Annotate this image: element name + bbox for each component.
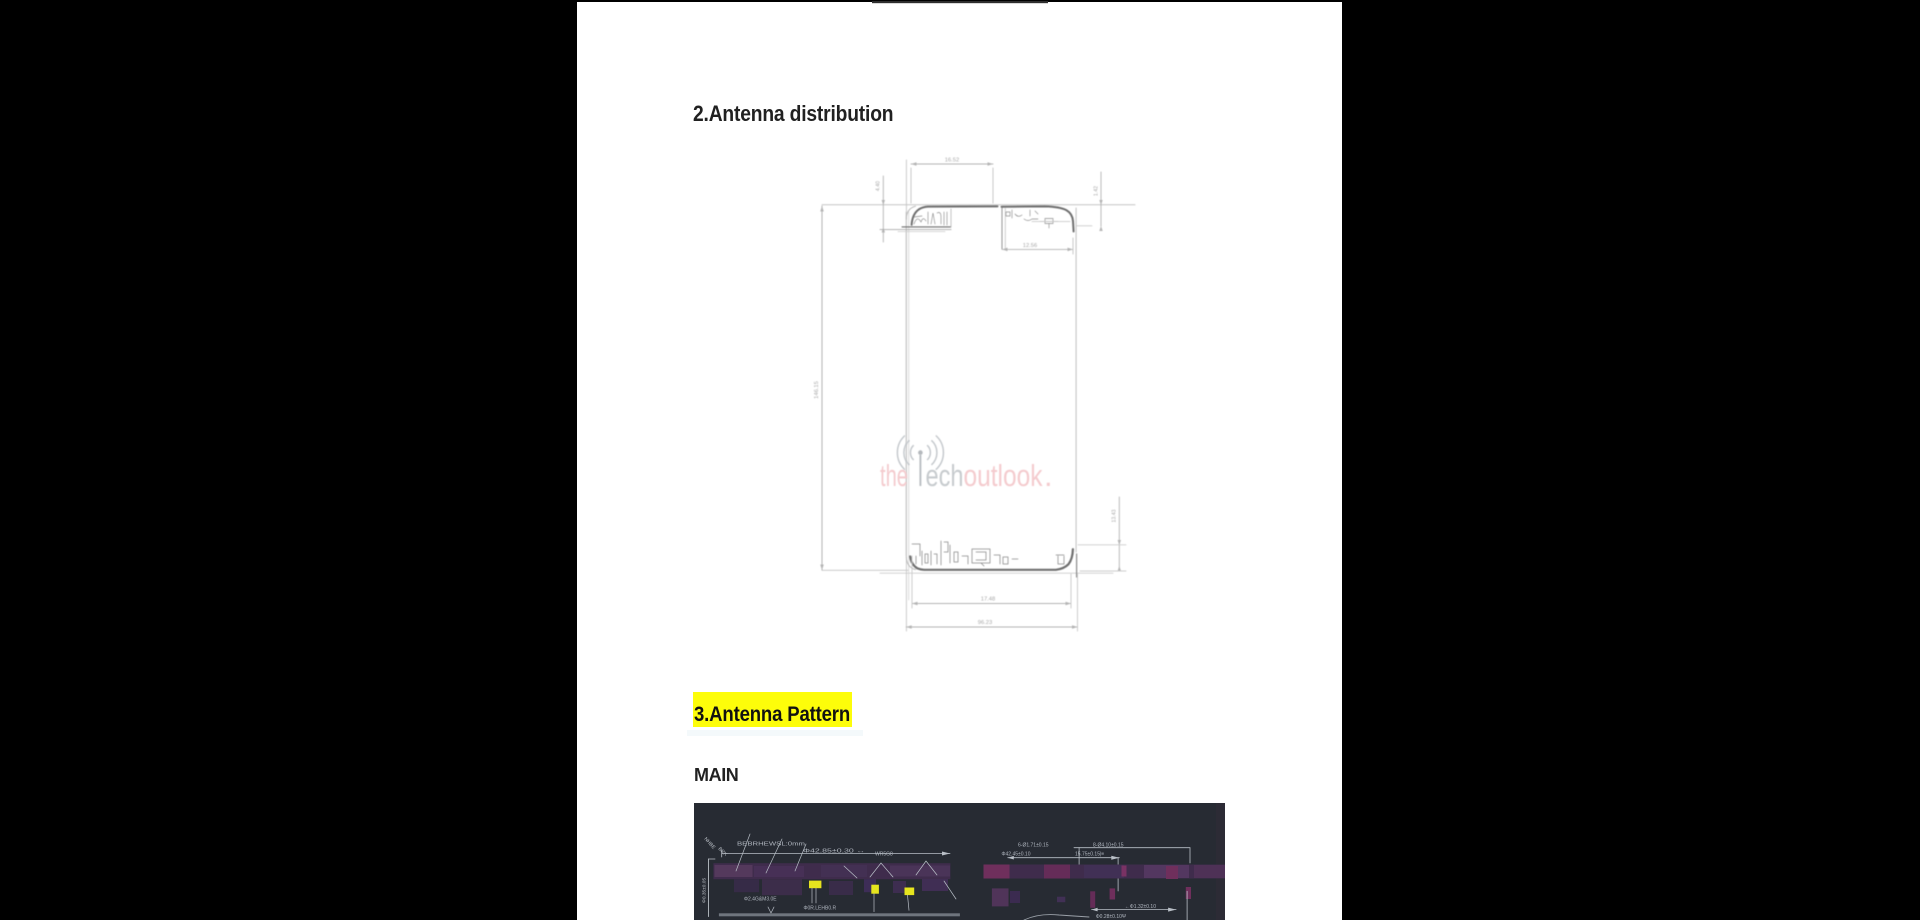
svg-text:1.42: 1.42 bbox=[1094, 186, 1100, 196]
svg-text:outlook: outlook bbox=[964, 458, 1043, 493]
svg-text:.: . bbox=[1044, 458, 1053, 493]
svg-text:ech: ech bbox=[926, 458, 964, 493]
svg-text:Φ2.4G&M3.0E: Φ2.4G&M3.0E bbox=[744, 897, 777, 903]
svg-text:4.40: 4.40 bbox=[876, 181, 882, 191]
svg-text:16.52: 16.52 bbox=[945, 158, 960, 164]
svg-text:Φ42.45±0.10: Φ42.45±0.10 bbox=[1002, 852, 1031, 858]
svg-text:WR5G8: WR5G8 bbox=[875, 852, 893, 858]
svg-text:6-Ø1.71±0.15: 6-Ø1.71±0.15 bbox=[1018, 843, 1049, 849]
svg-text:the: the bbox=[880, 458, 908, 493]
svg-text:BEBRHEWSL:0mm: BEBRHEWSL:0mm bbox=[737, 842, 805, 848]
svg-text:12.56: 12.56 bbox=[1023, 243, 1038, 249]
svg-text:Φ0R.LEHB0.R: Φ0R.LEHB0.R bbox=[804, 906, 837, 912]
svg-text:Φ0.28±0.10Ψ: Φ0.28±0.10Ψ bbox=[1096, 914, 1126, 920]
svg-text:←Φ1.32±0.10: ←Φ1.32±0.10 bbox=[1125, 904, 1156, 910]
svg-text:146.15: 146.15 bbox=[814, 381, 820, 399]
svg-text:Φ0.35±0.05: Φ0.35±0.05 bbox=[702, 878, 708, 903]
svg-text:17.48: 17.48 bbox=[981, 597, 996, 603]
svg-text:96.23: 96.23 bbox=[978, 620, 993, 626]
svg-text:13.43: 13.43 bbox=[1112, 509, 1118, 522]
